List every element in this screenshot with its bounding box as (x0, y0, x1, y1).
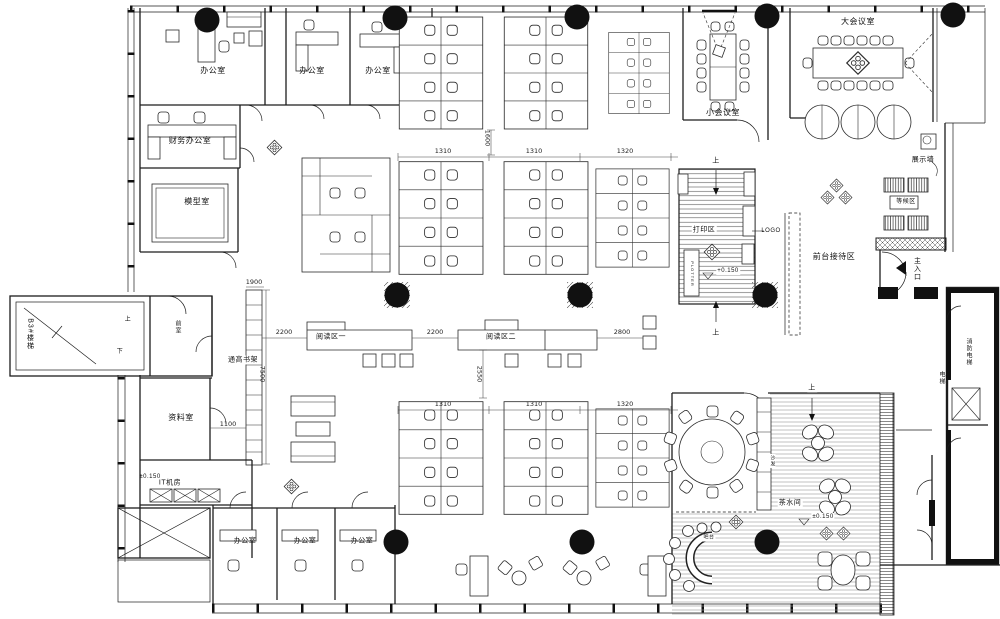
elevator-icon (952, 388, 980, 420)
round-table-room (663, 398, 771, 512)
dim-1900: 1900 (246, 279, 263, 286)
stool-group-1 (497, 556, 543, 585)
dim-1320-b: 1320 (617, 401, 634, 408)
label-office-b3: 办公室 (351, 538, 374, 545)
conference-rooms (683, 8, 937, 142)
label-office-3: 办公室 (365, 67, 391, 75)
label-finance-office: 财务办公室 (169, 137, 212, 145)
dim-2550: 2550 (476, 366, 483, 383)
label-sofa: 沙发 (769, 454, 776, 468)
dim-2200-b: 2200 (427, 329, 444, 336)
label-reading-area-1: 阅读区一 (316, 334, 346, 341)
dim-2200-a: 2200 (276, 329, 293, 336)
label-model-room: 模型室 (184, 198, 210, 206)
dim-2800: 2800 (614, 329, 631, 336)
label-archive-room: 资料室 (168, 414, 194, 422)
label-print-area: 打印区 (692, 226, 717, 235)
right-core (880, 288, 1000, 565)
it-equipment (150, 489, 220, 502)
label-plotter: PLOTTER (689, 260, 695, 287)
label-up-print-bottom: 上 (712, 330, 720, 337)
label-vestibule: 前室 (174, 320, 180, 334)
label-reception-area: 前台接待区 (813, 253, 856, 261)
dim-7500: 7500 (259, 366, 266, 383)
bottom-offices (213, 492, 395, 604)
dim-1310-b: 1310 (526, 148, 543, 155)
label-stair-down: 下 (117, 349, 124, 355)
shaft-x (118, 508, 210, 558)
stool-group-2 (562, 556, 610, 585)
label-small-meeting-room: 小会议室 (706, 109, 740, 117)
label-large-meeting-room: 大会议室 (841, 18, 875, 26)
floor-plan: 办公室办公室办公室财务办公室模型室小会议室大会议室展示墙等候区打印区LOGO前台… (0, 0, 1000, 619)
label-up-deck: 上 (807, 384, 817, 393)
decor-diamond (839, 191, 852, 204)
entrance-arrow-icon (896, 261, 906, 275)
floor-plan-drawing (0, 0, 1000, 619)
decor-diamond (830, 179, 843, 192)
label-stair-up: 上 (125, 317, 132, 323)
print-area-stair (678, 169, 755, 322)
label-logo: LOGO (761, 228, 780, 234)
dim-1310-a: 1310 (435, 148, 452, 155)
l-desk-pod (302, 158, 390, 272)
label-pantry: 茶水间 (778, 499, 803, 508)
dim-1310-d: 1310 (526, 401, 543, 408)
label-fire-elevator: 消防电梯 (965, 338, 971, 366)
label-office-b2: 办公室 (294, 538, 317, 545)
level-it: ±0.150 (139, 474, 160, 480)
label-bar: 吧台 (702, 535, 715, 542)
decor-diamond (821, 191, 834, 204)
label-it-room: IT机房 (159, 480, 181, 487)
label-office-2: 办公室 (299, 67, 325, 75)
label-waiting-area: 等候区 (895, 198, 917, 206)
label-up-print-top: 上 (712, 158, 720, 165)
label-office-1: 办公室 (200, 67, 226, 75)
level-print: +0.150 (716, 267, 740, 275)
label-tall-bookshelf: 通高书架 (227, 356, 259, 365)
b3-stair-annex (10, 296, 212, 376)
dim-1100: 1100 (220, 421, 237, 428)
label-reading-area-2: 阅读区二 (486, 334, 516, 341)
label-office-b1: 办公室 (234, 538, 257, 545)
decor (267, 140, 299, 494)
label-b3-stair: B3#楼梯 (27, 318, 34, 349)
dim-1320-a: 1320 (617, 148, 634, 155)
dim-1310-c: 1310 (435, 401, 452, 408)
label-display-wall: 展示墙 (912, 157, 935, 164)
label-main-entrance: 主入口 (914, 257, 921, 281)
dim-1600: 1600 (484, 130, 491, 147)
level-deck: ±0.150 (811, 513, 834, 521)
open-office-desks (302, 17, 669, 514)
label-elevator: 电梯 (938, 371, 944, 385)
